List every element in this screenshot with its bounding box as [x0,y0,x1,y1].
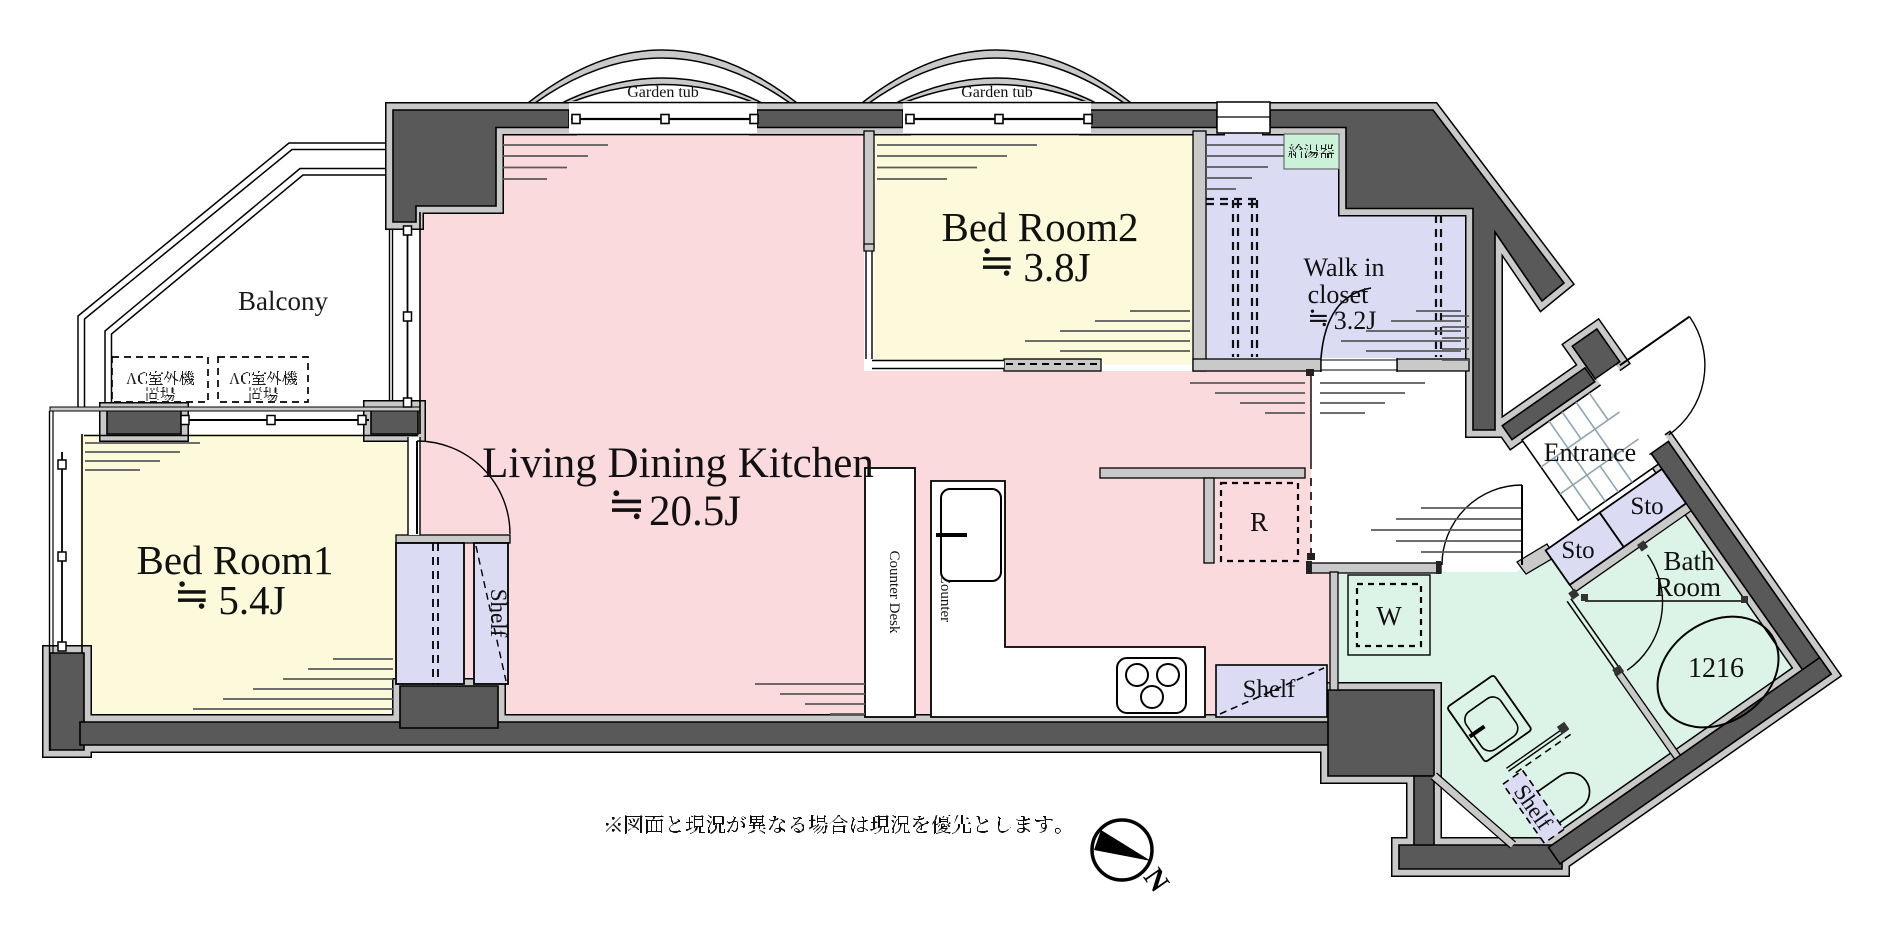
svg-text:Garden tub: Garden tub [961,84,1033,101]
svg-text:Walk in: Walk in [1304,253,1385,282]
svg-text:Balcony: Balcony [238,286,328,316]
svg-text:R: R [1250,507,1268,537]
svg-text:Room: Room [1655,572,1721,602]
svg-text:1216: 1216 [1688,653,1744,684]
svg-text:Sto: Sto [1630,493,1663,520]
svg-text:Shelf: Shelf [486,589,511,638]
svg-text:Entrance: Entrance [1544,438,1636,467]
svg-text:Sto: Sto [1561,537,1594,564]
svg-text:5.4J: 5.4J [218,577,285,623]
svg-text:Counter Desk: Counter Desk [886,551,902,634]
svg-text:3.8J: 3.8J [1023,244,1090,290]
svg-text:20.5J: 20.5J [649,488,741,535]
svg-text:W: W [1376,601,1402,631]
svg-text:Shelf: Shelf [1243,676,1296,703]
svg-text:Living Dining Kitchen: Living Dining Kitchen [482,440,874,487]
svg-text:closet: closet [1308,280,1369,309]
svg-text:Garden tub: Garden tub [627,84,699,101]
svg-text:3.2J: 3.2J [1334,306,1377,335]
